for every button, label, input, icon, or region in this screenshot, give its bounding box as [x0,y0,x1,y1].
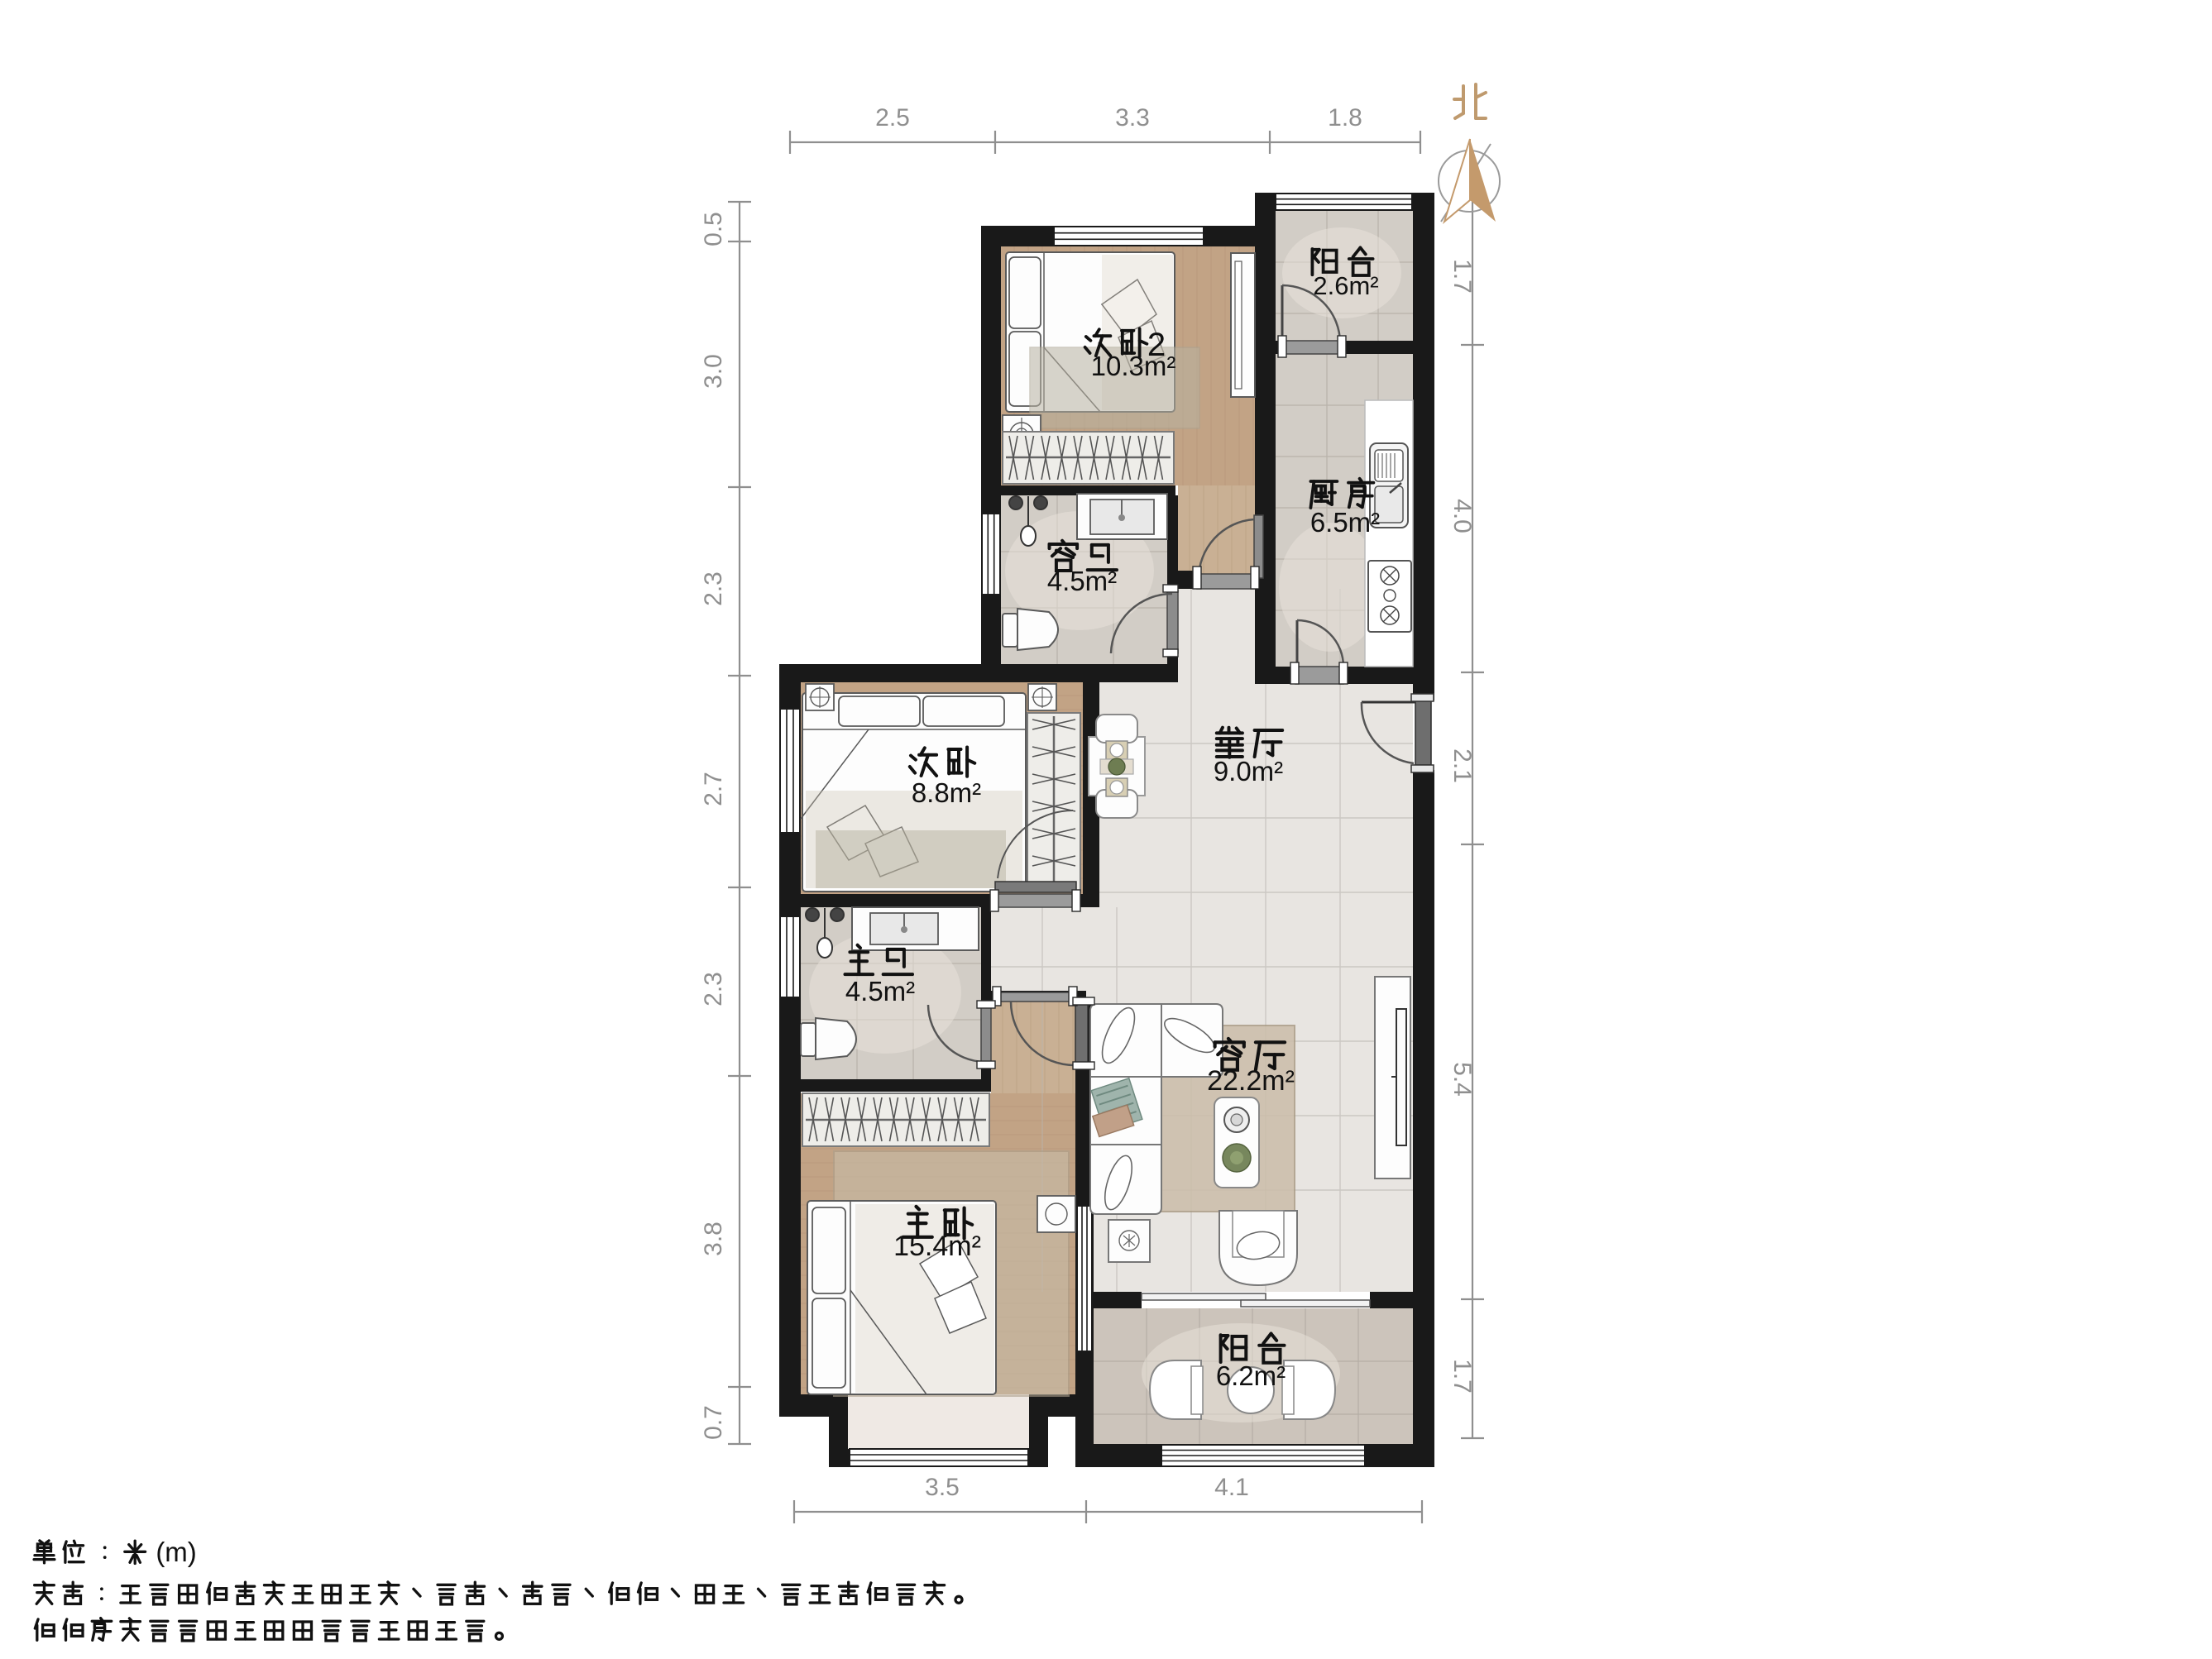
svg-text:1.8: 1.8 [1328,104,1362,131]
svg-text:10.3m²: 10.3m² [1091,351,1176,381]
svg-text:6.2m²: 6.2m² [1216,1360,1286,1391]
svg-text:2.3: 2.3 [700,972,727,1006]
svg-text:0.5: 0.5 [700,212,727,246]
svg-text:9.0m²: 9.0m² [1214,756,1283,786]
svg-text:0.7: 0.7 [700,1405,727,1440]
svg-text:3.3: 3.3 [1115,104,1150,131]
svg-text:3.0: 3.0 [700,354,727,389]
svg-text:2.5: 2.5 [875,104,910,131]
svg-text:1.7: 1.7 [1448,259,1476,294]
svg-text:3.8: 3.8 [700,1222,727,1256]
svg-text:6.5m²: 6.5m² [1310,507,1380,538]
svg-text:4.5m²: 4.5m² [845,976,915,1006]
svg-text:4.5m²: 4.5m² [1047,566,1117,596]
svg-text:1.7: 1.7 [1448,1359,1476,1394]
svg-text:4.0: 4.0 [1448,499,1476,533]
svg-text:2.1: 2.1 [1448,748,1476,783]
svg-text:2.7: 2.7 [700,772,727,806]
svg-text:8.8m²: 8.8m² [912,777,981,808]
svg-text:22.2m²: 22.2m² [1207,1065,1295,1097]
svg-text:3.5: 3.5 [925,1474,960,1501]
svg-text:5.4: 5.4 [1448,1062,1476,1097]
svg-text:4.1: 4.1 [1214,1474,1249,1501]
svg-text:(m): (m) [156,1537,196,1567]
svg-text:15.4m²: 15.4m² [893,1231,981,1262]
svg-text:2.3: 2.3 [700,571,727,606]
svg-text:2.6m²: 2.6m² [1313,271,1378,300]
